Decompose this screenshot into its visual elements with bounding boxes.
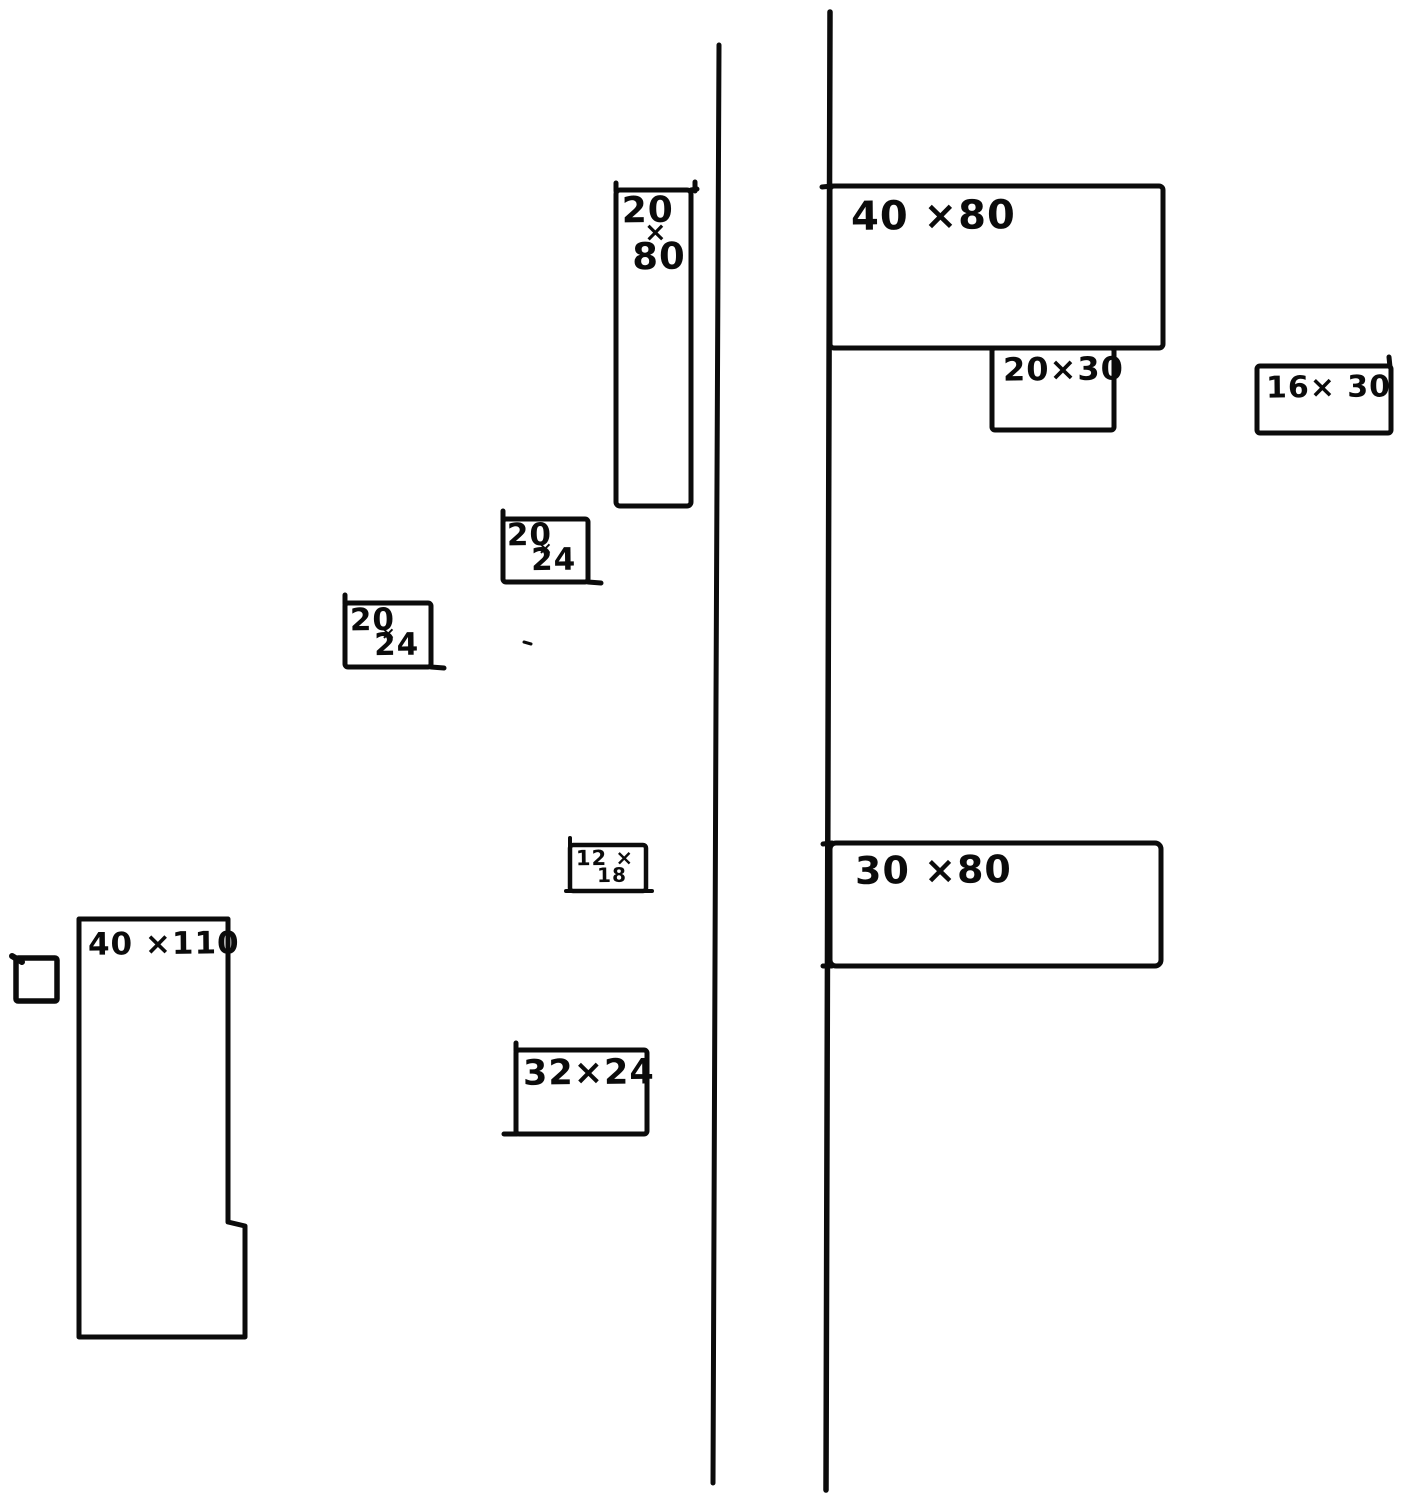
label-lot-20x24-upper: 20 × 24 bbox=[507, 521, 577, 576]
street-line-west bbox=[713, 45, 719, 1483]
label-line: 18 bbox=[597, 866, 627, 885]
plan-drawing bbox=[0, 0, 1407, 1500]
small-square-outline bbox=[12, 956, 57, 1001]
label-line: 24 bbox=[374, 630, 419, 660]
label-lot-30x80: 30 ×80 bbox=[855, 850, 1012, 890]
site-plan-canvas: 20 × 80 40 ×80 20×30 16× 30 20 × 24 20 ×… bbox=[0, 0, 1407, 1500]
label-lot-40x80: 40 ×80 bbox=[851, 195, 1016, 237]
label-line: 24 bbox=[531, 545, 576, 575]
label-lot-20x30: 20×30 bbox=[1003, 352, 1124, 385]
label-line: 80 bbox=[632, 238, 686, 274]
label-lot-16x30: 16× 30 bbox=[1266, 372, 1391, 403]
stray-pen-mark bbox=[524, 642, 531, 644]
label-lot-32x24: 32×24 bbox=[523, 1055, 655, 1091]
label-lot-12x18: 12 × 18 bbox=[576, 849, 635, 886]
lot-40x110-outline bbox=[79, 919, 245, 1337]
label-lot-20x24-lower: 20 × 24 bbox=[350, 606, 420, 661]
label-lot-40x110: 40 ×110 bbox=[88, 928, 240, 961]
label-lot-20x80: 20 × 80 bbox=[620, 194, 686, 275]
